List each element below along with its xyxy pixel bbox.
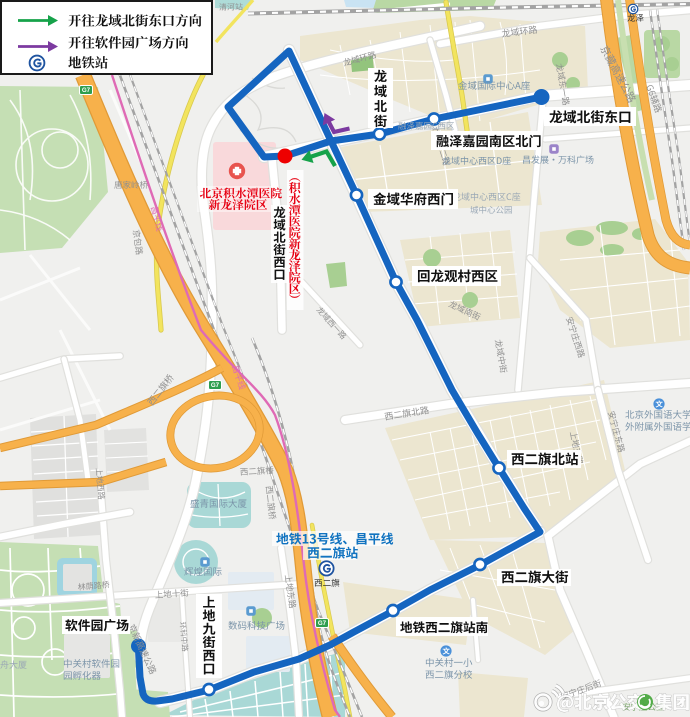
svg-text:G7: G7 <box>82 87 91 94</box>
svg-text:G7: G7 <box>318 620 327 627</box>
svg-text:G7: G7 <box>211 382 220 389</box>
